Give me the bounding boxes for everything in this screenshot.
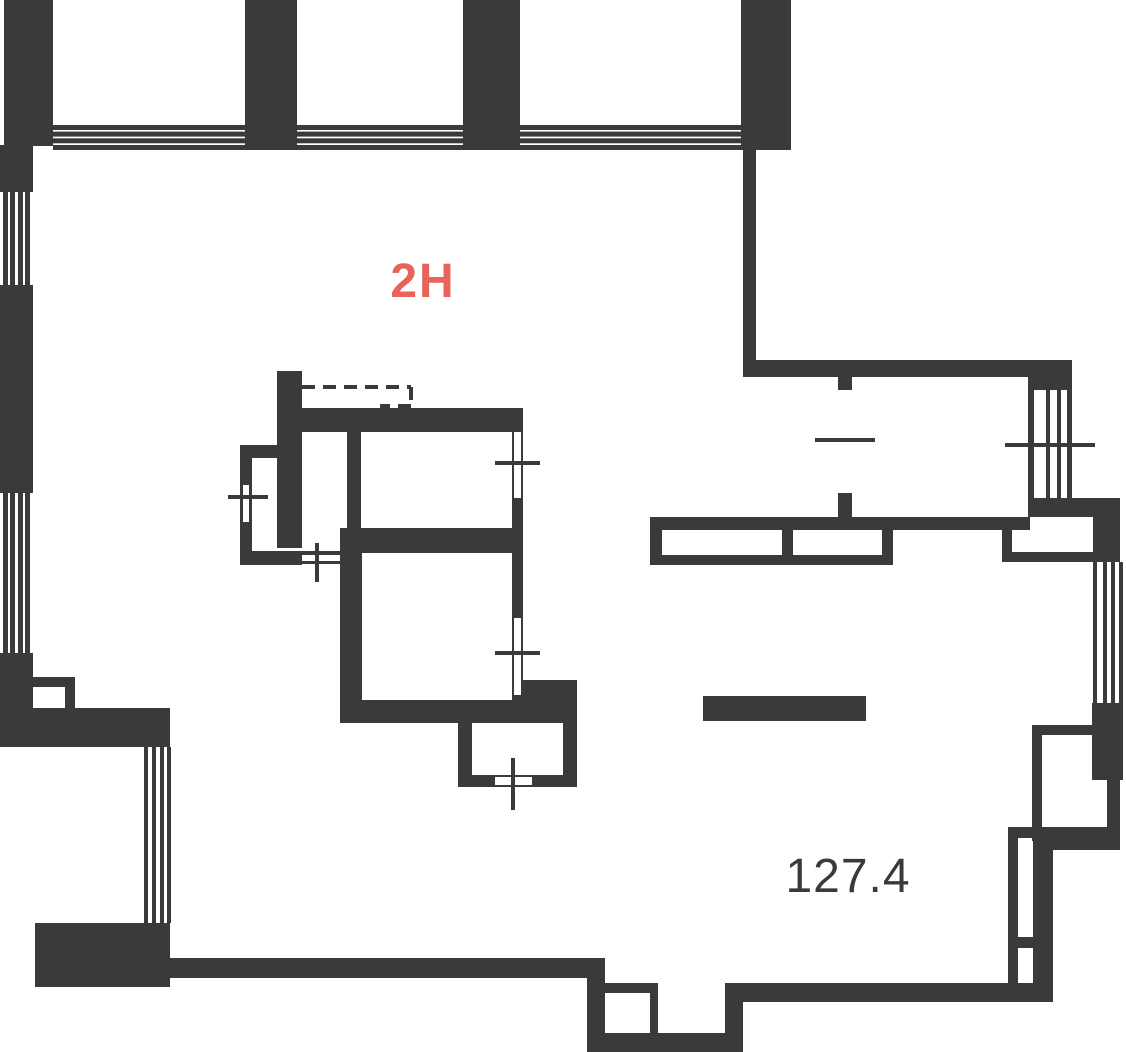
upper-right-partition xyxy=(743,150,1072,517)
corridor-doorway xyxy=(300,543,340,582)
area-label: 127.4 xyxy=(785,850,910,903)
left-wall-niche xyxy=(33,677,75,708)
island-partition xyxy=(703,696,866,721)
interior-main-wall xyxy=(277,371,302,548)
floor-plan-canvas: 2H 127.4 xyxy=(0,0,1126,1052)
room-a xyxy=(302,408,540,555)
room-b xyxy=(340,528,577,723)
cabinet-row xyxy=(650,517,1113,565)
left-window-lower-icon xyxy=(3,493,30,653)
left-window-upper-icon xyxy=(3,192,30,285)
dashed-overhang xyxy=(302,387,411,406)
bottom-right-wall xyxy=(1008,703,1123,1002)
right-window-icon xyxy=(1093,562,1123,707)
lower-left-window-icon xyxy=(144,747,171,923)
upper-right-door-icon xyxy=(815,438,875,442)
top-window-band-icon xyxy=(53,125,741,150)
upper-right-window-icon xyxy=(1005,377,1095,498)
floor-plan: 2H 127.4 xyxy=(0,0,1126,1052)
unit-label: 2H xyxy=(390,255,455,308)
bottom-walls xyxy=(170,958,1053,1052)
